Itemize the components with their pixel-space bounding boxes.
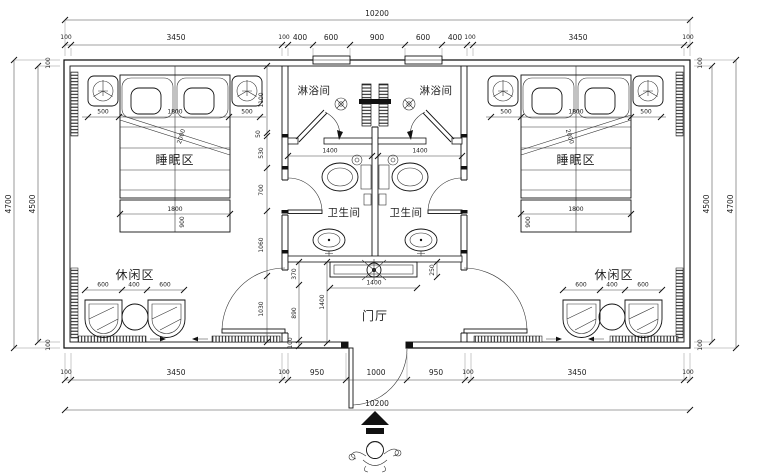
top-window-left: [313, 56, 350, 64]
shower-door-left: [296, 110, 343, 142]
svg-text:10200: 10200: [365, 399, 389, 408]
svg-text:900: 900: [525, 216, 532, 228]
svg-text:1100: 1100: [258, 92, 265, 107]
label-shower-right: 淋浴间: [420, 84, 453, 97]
svg-text:250: 250: [429, 264, 436, 276]
core: [313, 98, 437, 281]
wall-panels: [71, 72, 683, 342]
svg-text:100: 100: [682, 369, 694, 376]
wall-joints: [282, 134, 468, 254]
door-jamb-left: [341, 342, 349, 349]
svg-text:500: 500: [97, 109, 109, 116]
leisure-chairs: [563, 300, 662, 338]
svg-text:4700: 4700: [726, 194, 735, 213]
side-table: [599, 304, 625, 330]
svg-text:3450: 3450: [166, 33, 185, 42]
floor-plan-drawing: 淋浴间 淋浴间 卫生间 卫生间 睡眠区 睡眠区 休闲区 休闲区 门厅 10200…: [0, 0, 760, 473]
svg-text:2000: 2000: [176, 128, 187, 145]
dim-leisure-left: 600 400 600: [82, 282, 187, 294]
bath-hall-wall: [288, 256, 462, 262]
dim-leisure-right: 600 400 600: [560, 282, 665, 294]
nightstand-lamp-icon: [488, 76, 518, 106]
svg-text:1400: 1400: [366, 280, 381, 287]
dim-bottom-total: 10200: [62, 399, 693, 413]
svg-text:500: 500: [640, 109, 652, 116]
svg-text:1800: 1800: [568, 206, 583, 213]
label-leisure-left: 休闲区: [115, 268, 154, 282]
top-window-right: [405, 56, 442, 64]
dimensions: 10200 100 3450 100 400 600 900 600 400 1…: [4, 9, 739, 413]
svg-text:100: 100: [697, 339, 704, 351]
svg-text:4500: 4500: [28, 194, 37, 213]
svg-text:100: 100: [462, 369, 474, 376]
svg-text:100: 100: [464, 34, 476, 41]
svg-text:1800: 1800: [568, 109, 583, 116]
svg-text:100: 100: [60, 34, 72, 41]
svg-text:1000: 1000: [366, 368, 385, 377]
svg-text:600: 600: [97, 282, 109, 289]
svg-text:1800: 1800: [167, 206, 182, 213]
dim-right-side: 4500 4700 100 100: [694, 57, 739, 351]
bath-door-left: [288, 178, 322, 214]
svg-text:3450: 3450: [166, 368, 185, 377]
partition-right: [461, 66, 467, 342]
nightstand-lamp-icon: [88, 76, 118, 106]
label-wc-left: 卫生间: [328, 206, 361, 219]
room-labels: 淋浴间 淋浴间 卫生间 卫生间 睡眠区 睡眠区 休闲区 休闲区 门厅: [115, 84, 633, 323]
svg-text:500: 500: [241, 109, 253, 116]
svg-text:400: 400: [128, 282, 140, 289]
room-door-right: [464, 268, 527, 333]
dim-bed-left: 500 1800 500 2000 1800 900: [82, 109, 266, 228]
svg-text:100: 100: [60, 369, 72, 376]
room-right: [488, 66, 663, 338]
entry-arrow-icon: [361, 411, 389, 425]
svg-text:1400: 1400: [322, 148, 337, 155]
dim-left-side: 4700 4500 100 100: [4, 57, 60, 351]
floor-plan-canvas: 淋浴间 淋浴间 卫生间 卫生间 睡眠区 睡眠区 休闲区 休闲区 门厅 10200…: [0, 0, 760, 473]
room-left: [85, 66, 262, 338]
person-figure: [349, 442, 401, 473]
svg-text:2000: 2000: [564, 128, 575, 145]
svg-text:10200: 10200: [365, 9, 389, 18]
front-door-opening: [349, 341, 406, 349]
svg-text:400: 400: [448, 33, 463, 42]
svg-text:3450: 3450: [567, 368, 586, 377]
shower-walls: [288, 138, 462, 144]
sink-right: [405, 229, 437, 256]
label-leisure-right: 休闲区: [594, 268, 633, 282]
svg-text:3450: 3450: [568, 33, 587, 42]
partition-left: [282, 66, 288, 342]
dim-partition-chain: 1100 50 530 700 1060 1030: [255, 63, 270, 345]
label-shower-left: 淋浴间: [298, 84, 331, 97]
floor-drain-icon: [335, 98, 347, 110]
side-table: [122, 304, 148, 330]
svg-text:100: 100: [278, 369, 290, 376]
svg-text:1400: 1400: [319, 294, 326, 309]
label-wc-right: 卫生间: [390, 206, 423, 219]
svg-text:400: 400: [606, 282, 618, 289]
svg-text:100: 100: [45, 339, 52, 351]
plumbing-shaft: [359, 84, 391, 126]
svg-text:100: 100: [287, 337, 294, 349]
svg-text:890: 890: [291, 307, 298, 319]
door-jamb-right: [406, 342, 414, 349]
svg-text:950: 950: [310, 368, 325, 377]
svg-text:700: 700: [258, 184, 265, 196]
svg-text:100: 100: [278, 34, 290, 41]
dim-bottom-row: 100 3450 100 950 1000 950 100 3450 100: [60, 353, 694, 383]
svg-text:100: 100: [45, 57, 52, 69]
svg-text:370: 370: [291, 268, 298, 280]
toilet-left: [322, 155, 371, 191]
label-sleep-left: 睡眠区: [155, 153, 194, 167]
svg-text:50: 50: [255, 130, 262, 138]
entrance-marker: [349, 411, 401, 472]
svg-text:100: 100: [682, 34, 694, 41]
sink-left: [313, 229, 345, 256]
svg-text:600: 600: [324, 33, 339, 42]
label-sleep-right: 睡眠区: [556, 153, 595, 167]
svg-text:900: 900: [370, 33, 385, 42]
dim-top-row: 100 3450 100 400 600 900 600 400 100 345…: [60, 33, 694, 56]
grab-bars: [364, 194, 386, 205]
svg-text:4500: 4500: [702, 194, 711, 213]
floor-drain-icon: [403, 98, 415, 110]
label-hall: 门厅: [362, 308, 388, 323]
toilet-right: [379, 155, 428, 191]
svg-text:100: 100: [697, 57, 704, 69]
room-door-left: [222, 268, 285, 333]
svg-text:1400: 1400: [412, 148, 427, 155]
svg-text:900: 900: [179, 216, 186, 228]
shower-door-right: [407, 110, 454, 142]
svg-text:950: 950: [429, 368, 444, 377]
svg-text:600: 600: [416, 33, 431, 42]
svg-text:1060: 1060: [258, 237, 265, 252]
svg-text:600: 600: [637, 282, 649, 289]
dim-bath-width: 1400 1400: [285, 148, 465, 160]
svg-text:1030: 1030: [258, 301, 265, 316]
nightstand-lamp-icon: [633, 76, 663, 106]
svg-text:530: 530: [258, 147, 265, 159]
svg-text:1800: 1800: [167, 109, 182, 116]
svg-text:600: 600: [159, 282, 171, 289]
svg-text:600: 600: [575, 282, 587, 289]
svg-text:400: 400: [293, 33, 308, 42]
leisure-chairs: [85, 300, 185, 338]
svg-text:4700: 4700: [4, 194, 13, 213]
bath-door-right: [428, 178, 462, 214]
svg-text:500: 500: [500, 109, 512, 116]
center-wall: [372, 127, 378, 258]
hall-counter: [330, 259, 417, 281]
